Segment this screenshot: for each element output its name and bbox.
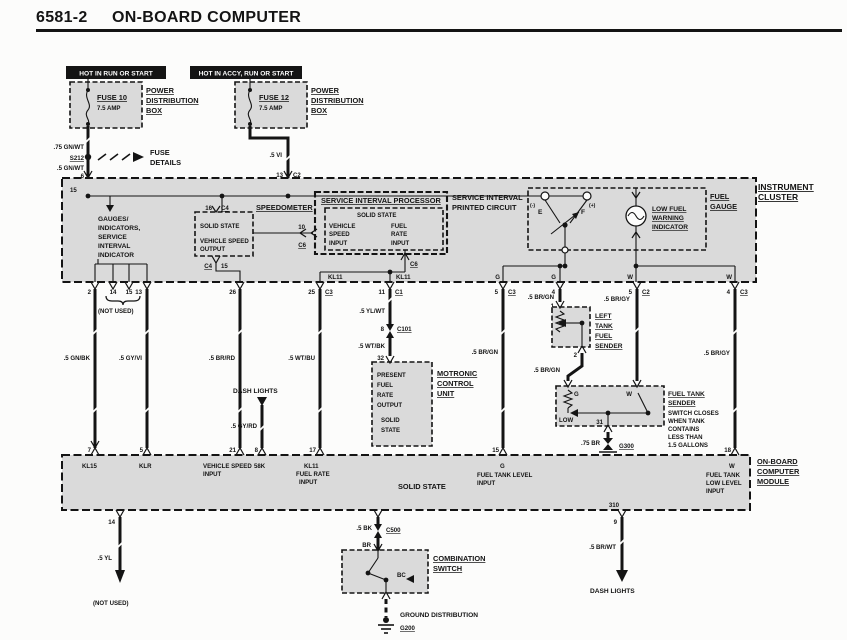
sip-printed-circuit-line1: SERVICE INTERVAL bbox=[452, 193, 523, 202]
cluster-bottom-forks bbox=[91, 282, 739, 289]
speedometer-label: SPEEDOMETER bbox=[256, 203, 313, 212]
fuse10-name: FUSE 10 bbox=[97, 93, 127, 102]
kl11-label-left: KL11 bbox=[328, 274, 343, 281]
motronic-line4: OUTPUT bbox=[377, 402, 402, 409]
left-tank-fuel-sender bbox=[552, 301, 590, 353]
left-sender-label-line3: FUEL bbox=[595, 333, 612, 340]
pdb1-line2: DISTRIBUTION bbox=[146, 96, 199, 105]
wire-wtbk-label: .5 WT/BK bbox=[358, 343, 385, 350]
module-terminal-9: 9 bbox=[614, 519, 618, 526]
terminal-18: 18 bbox=[724, 447, 731, 454]
wire-brgn-b-label: .5 BR/GN bbox=[528, 294, 554, 301]
pdb1-line1: POWER bbox=[146, 86, 175, 95]
switch-bc-label: BC bbox=[397, 572, 406, 579]
pdb2-line2: DISTRIBUTION bbox=[311, 96, 364, 105]
module-58k: 58K bbox=[254, 463, 266, 470]
sip-vsi-line3: INPUT bbox=[329, 240, 348, 247]
combination-switch: BC bbox=[342, 544, 428, 599]
fuse12-rating: 7.5 AMP bbox=[259, 105, 282, 112]
pdb2-line1: POWER bbox=[311, 86, 340, 95]
connector-c500: C500 bbox=[386, 527, 401, 534]
module-terminal-17: 17 bbox=[309, 447, 316, 454]
pdb2-line3: BOX bbox=[311, 106, 327, 115]
terminal-15b: 15 bbox=[126, 289, 133, 296]
cluster-label-line2: CLUSTER bbox=[758, 192, 798, 202]
wire-ylwt-label: .5 YL/WT bbox=[359, 308, 385, 315]
bus-letter-g2: G bbox=[551, 274, 556, 281]
module-ftli-line2: INPUT bbox=[477, 480, 496, 487]
tank-low-label: LOW bbox=[559, 417, 573, 424]
wire-brgn-a-label: .5 BR/GN bbox=[472, 349, 498, 356]
left-sender-label-line1: LEFT bbox=[595, 313, 611, 320]
cluster-label-line1: INSTRUMENT bbox=[758, 182, 815, 192]
module-fri-line3: INPUT bbox=[299, 479, 318, 486]
hot-in-accy-label-box: HOT IN ACCY, RUN OR START bbox=[190, 66, 302, 79]
module-terminal-8: 8 bbox=[255, 447, 259, 454]
motronic-line3: RATE bbox=[377, 392, 393, 399]
module-vsi-line1: VEHICLE SPEED bbox=[203, 463, 252, 470]
wire-brgy-b-label: .5 BR/GY bbox=[704, 350, 730, 357]
cluster-terminal-15: 15 bbox=[70, 187, 77, 194]
gauges-line1: GAUGES/ bbox=[98, 216, 129, 223]
pdb1-line3: BOX bbox=[146, 106, 162, 115]
terminal-11: 11 bbox=[379, 289, 386, 296]
not-used-label-1: (NOT USED) bbox=[98, 308, 134, 315]
wire-brrd-label: .5 BR/RD bbox=[209, 355, 236, 362]
terminal-26: 26 bbox=[229, 289, 236, 296]
motronic-line2: FUEL bbox=[377, 382, 393, 389]
motronic-control-unit: PRESENT FUEL RATE OUTPUT SOLID STATE bbox=[372, 356, 432, 446]
motronic-label-line3: UNIT bbox=[437, 389, 455, 398]
gauge-terminal-minus bbox=[541, 192, 549, 200]
fuel-tank-sender: G W LOW 31 bbox=[556, 380, 664, 432]
low-fuel-label-line3: INDICATOR bbox=[652, 224, 688, 231]
module-terminal-310: 310 bbox=[609, 502, 620, 509]
speedo-terminal-10: 10 bbox=[298, 224, 305, 231]
connector-c101 bbox=[386, 324, 394, 338]
fuse10-rating: 7.5 AMP bbox=[97, 105, 120, 112]
module-terminal-15: 15 bbox=[492, 447, 499, 454]
speedo-connector-c4-top: C4 bbox=[221, 205, 229, 212]
ground-distribution-label: GROUND DISTRIBUTION bbox=[400, 612, 478, 619]
bus-letter-w2: W bbox=[726, 274, 732, 281]
splice-s212 bbox=[85, 154, 91, 160]
motronic-line1: PRESENT bbox=[377, 372, 406, 379]
connector-c2-b: C2 bbox=[642, 289, 650, 296]
module-fri-line2: FUEL RATE bbox=[296, 471, 330, 478]
module-ftlli-line1: FUEL TANK bbox=[706, 472, 741, 479]
motronic-label-line1: MOTRONIC bbox=[437, 369, 478, 378]
arrowhead-icon bbox=[133, 152, 144, 162]
motronic-line5: SOLID bbox=[381, 417, 400, 424]
ground-g300-label: G300 bbox=[619, 443, 635, 450]
left-sender-label-line4: SENDER bbox=[595, 343, 623, 350]
wire-yl-label: .5 YL bbox=[98, 555, 113, 562]
gauges-line5: INDICATOR bbox=[98, 252, 134, 259]
speedo-solid-state: SOLID STATE bbox=[200, 223, 239, 230]
wiring-diagram-page: 6581-2 ON-BOARD COMPUTER HOT IN RUN OR S… bbox=[0, 0, 847, 640]
motronic-line6: STATE bbox=[381, 427, 400, 434]
kl11-label-right: KL11 bbox=[396, 274, 411, 281]
tank-terminal-31: 31 bbox=[596, 419, 603, 426]
fuse-details-line2: DETAILS bbox=[150, 158, 181, 167]
wire-wtbu-label: .5 WT/BU bbox=[288, 355, 315, 362]
wire-bk-label: .5 BK bbox=[356, 525, 372, 532]
section-number: 6581-2 bbox=[36, 9, 88, 26]
module-ftlli-line3: INPUT bbox=[706, 488, 725, 495]
terminal-14: 14 bbox=[110, 289, 117, 296]
wire-gyrd-label: .5 GY/RD bbox=[231, 423, 258, 430]
terminal-4b: 4 bbox=[727, 289, 731, 296]
fuse-details-line1: FUSE bbox=[150, 148, 170, 157]
motronic-label-line2: CONTROL bbox=[437, 379, 474, 388]
dash-lights-feed bbox=[257, 397, 267, 406]
left-sender-label-line2: TANK bbox=[595, 323, 613, 330]
speedo-vso-line1: VEHICLE SPEED bbox=[200, 238, 249, 245]
sip-fri-line2: RATE bbox=[391, 231, 407, 238]
tank-terminal-g: G bbox=[574, 391, 579, 398]
module-g: G bbox=[500, 463, 505, 470]
sip-connector-c6: C6 bbox=[410, 261, 418, 268]
hot-in-run-label-box: HOT IN RUN OR START bbox=[66, 66, 166, 79]
speedo-connector-c6: C6 bbox=[298, 242, 306, 249]
gauge-plus-label: (+) bbox=[589, 203, 596, 209]
module-ftli-line1: FUEL TANK LEVEL bbox=[477, 472, 533, 479]
tank-note-line3: CONTAINS bbox=[668, 426, 699, 433]
ground-g200 bbox=[378, 599, 394, 633]
sip-fri-line1: FUEL bbox=[391, 223, 407, 230]
not-used-brace bbox=[106, 296, 140, 305]
bus-letter-w1: W bbox=[627, 274, 633, 281]
tank-sender-label-line1: FUEL TANK bbox=[668, 391, 705, 398]
module-bottom-forks bbox=[116, 510, 626, 517]
module-vsi-line2: INPUT bbox=[203, 471, 222, 478]
module-ftlli-line2: LOW LEVEL bbox=[706, 480, 742, 487]
connector-c3-c: C3 bbox=[740, 289, 748, 296]
sender-terminal-2: 2 bbox=[574, 352, 578, 359]
module-terminal-14: 14 bbox=[108, 519, 115, 526]
fuel-gauge-label-line1: FUEL bbox=[710, 192, 730, 201]
gauge-minus-label: (-) bbox=[530, 203, 535, 209]
connector-c1: C1 bbox=[395, 289, 403, 296]
module-solid-state: SOLID STATE bbox=[398, 482, 446, 491]
wire-end-icon bbox=[115, 570, 125, 583]
gauges-line4: INTERVAL bbox=[98, 243, 130, 250]
sip-solid-state: SOLID STATE bbox=[357, 212, 396, 219]
tank-note-line5: 1.5 GALLONS bbox=[668, 442, 708, 449]
terminal-25: 25 bbox=[308, 289, 315, 296]
gauge-terminal-plus bbox=[583, 192, 591, 200]
tank-sender-label-line2: SENDER bbox=[668, 400, 696, 407]
fuse-details-arrow bbox=[98, 152, 144, 162]
sip-fri-line3: INPUT bbox=[391, 240, 410, 247]
dash-lights-output bbox=[616, 517, 628, 582]
gauge-e-label: E bbox=[538, 209, 543, 216]
terminal-32: 32 bbox=[377, 355, 384, 362]
ground-g200-label: G200 bbox=[400, 625, 416, 632]
module-terminal-21: 21 bbox=[229, 447, 236, 454]
arrowhead-icon bbox=[257, 397, 267, 406]
module-terminal-7: 7 bbox=[88, 447, 92, 454]
fuse10-box: FUSE 10 7.5 AMP bbox=[70, 79, 142, 128]
low-fuel-label-line1: LOW FUEL bbox=[652, 206, 686, 213]
connector-c3-b: C3 bbox=[508, 289, 516, 296]
connector-c3-a: C3 bbox=[325, 289, 333, 296]
speedo-connector-c4-bottom: C4 bbox=[204, 263, 212, 270]
sip-printed-circuit-line2: PRINTED CIRCUIT bbox=[452, 203, 517, 212]
wire-gyvi-label: .5 GY/VI bbox=[119, 355, 142, 362]
power-distribution-box-label-1: POWER DISTRIBUTION BOX bbox=[146, 86, 199, 115]
hot-run-label: HOT IN RUN OR START bbox=[79, 71, 153, 78]
sip-title: SERVICE INTERVAL PROCESSOR bbox=[321, 196, 441, 205]
sip-vsi-line2: SPEED bbox=[329, 231, 350, 238]
tank-note-line2: WHEN TANK bbox=[668, 418, 705, 425]
wire-br-label: BR bbox=[362, 542, 371, 549]
tank-terminal-w: W bbox=[626, 391, 632, 398]
module-kl15: KL15 bbox=[82, 463, 98, 470]
module-label-line1: ON-BOARD bbox=[757, 457, 798, 466]
module-klr: KLR bbox=[139, 463, 152, 470]
wire-gnbk-label: .5 GN/BK bbox=[64, 355, 91, 362]
dash-lights-top-label: DASH LIGHTS bbox=[233, 388, 278, 395]
module-w: W bbox=[729, 463, 735, 470]
gauges-line2: INDICATORS, bbox=[98, 225, 140, 232]
fuel-gauge-label-line2: GAUGE bbox=[710, 202, 737, 211]
fuse12-name: FUSE 12 bbox=[259, 93, 289, 102]
wire-br75-label: .75 BR bbox=[581, 440, 601, 447]
module-terminal-5: 5 bbox=[140, 447, 144, 454]
module-label-line3: MODULE bbox=[757, 477, 789, 486]
wire-brgn-c-label: .5 BR/GN bbox=[534, 367, 560, 374]
splice-s212-label: S212 bbox=[70, 155, 85, 162]
page-title: ON-BOARD COMPUTER bbox=[112, 9, 301, 26]
not-used-label-2: (NOT USED) bbox=[93, 600, 129, 607]
header-rule bbox=[36, 29, 842, 32]
bus-letter-g1: G bbox=[495, 274, 500, 281]
comb-switch-label-line2: SWITCH bbox=[433, 564, 462, 573]
tank-note-line4: LESS THAN bbox=[668, 434, 703, 441]
wire-5gnwt-label: .5 GN/WT bbox=[57, 165, 84, 172]
gauge-f-label: F bbox=[581, 209, 585, 216]
wire-brwt-label: .5 BR/WT bbox=[589, 544, 616, 551]
speedo-terminal-16: 16 bbox=[205, 205, 212, 212]
sip-vsi-line1: VEHICLE bbox=[329, 223, 355, 230]
hot-accy-label: HOT IN ACCY, RUN OR START bbox=[199, 71, 294, 78]
speedo-vso-line2: OUTPUT bbox=[200, 246, 225, 253]
dash-lights-bottom-label: DASH LIGHTS bbox=[590, 588, 635, 595]
terminal-5a: 5 bbox=[495, 289, 499, 296]
wire-5vi-label: .5 VI bbox=[269, 152, 282, 159]
module-label-line2: COMPUTER bbox=[757, 467, 800, 476]
wire-75gnwt-label: .75 GN/WT bbox=[54, 144, 85, 151]
comb-switch-label-line1: COMBINATION bbox=[433, 554, 485, 563]
tank-note-line1: SWITCH CLOSES bbox=[668, 410, 719, 417]
wire-brgy-a-label: .5 BR/GY bbox=[604, 296, 630, 303]
gauges-line3: SERVICE bbox=[98, 234, 127, 241]
power-distribution-box-label-2: POWER DISTRIBUTION BOX bbox=[311, 86, 364, 115]
speedo-terminal-15: 15 bbox=[221, 263, 228, 270]
page-header: 6581-2 ON-BOARD COMPUTER bbox=[36, 9, 842, 32]
module-fri-line1: KL11 bbox=[304, 463, 319, 470]
terminal-5b: 5 bbox=[629, 289, 633, 296]
low-fuel-label-line2: WARNING bbox=[652, 215, 684, 222]
fuse12-box: FUSE 12 7.5 AMP bbox=[235, 79, 307, 128]
terminal-13b: 13 bbox=[135, 289, 142, 296]
terminal-2: 2 bbox=[88, 289, 92, 296]
connector-c101-label: C101 bbox=[397, 326, 412, 333]
arrowhead-icon bbox=[616, 570, 628, 582]
not-used-wire bbox=[115, 517, 125, 583]
terminal-8-c101: 8 bbox=[381, 326, 385, 333]
